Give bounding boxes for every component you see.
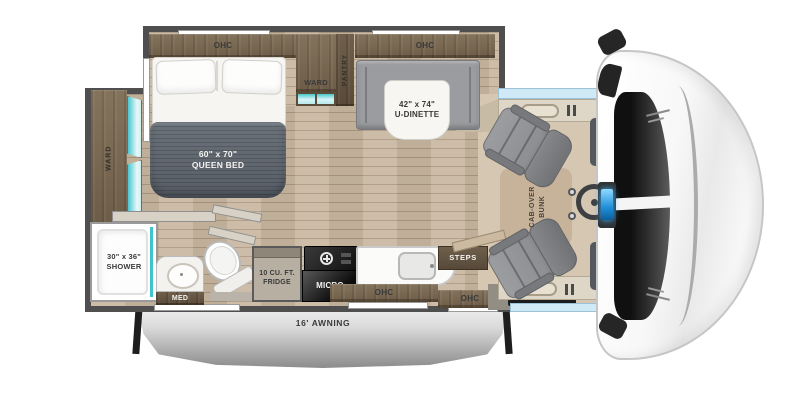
awning-end-right: [502, 306, 512, 354]
pillow: [155, 59, 216, 95]
bath-divider-wall: [112, 211, 216, 222]
dinette-size-label: 42" x 74": [399, 100, 435, 110]
fridge-name-label: FRIDGE: [263, 278, 291, 287]
cab-door-top-window: [498, 88, 602, 99]
bedroom-ward: WARD: [296, 34, 336, 92]
dash-screen: [601, 189, 613, 220]
cab-door-bottom-window: [510, 303, 602, 312]
awning: 16' AWNING: [132, 306, 514, 368]
pantry: PANTRY: [336, 34, 354, 106]
bed-type-label: QUEEN BED: [192, 160, 244, 171]
dash-knob: [568, 212, 576, 220]
bed-size-label: 60" x 70": [199, 149, 237, 160]
bedroom-window: [143, 58, 150, 142]
lav-sink: [167, 263, 199, 289]
bath-window: [154, 304, 240, 311]
awning-label: 16' AWNING: [132, 318, 514, 329]
bed-blanket: 60" x 70" QUEEN BED: [150, 122, 286, 198]
awning-end-left: [132, 306, 142, 354]
queen-bed: 60" x 70" QUEEN BED: [150, 55, 286, 197]
toilet-base: [210, 292, 254, 301]
dinette-name-label: U-DINETTE: [395, 110, 439, 120]
cooktop: [304, 246, 358, 272]
dinette-table: 42" x 74" U-DINETTE: [384, 80, 450, 140]
left-ward: WARD: [91, 90, 127, 226]
fridge-size-label: 10 CU. FT.: [259, 269, 294, 278]
dash-knob: [568, 188, 576, 196]
bedroom-ward-cabinets: [296, 92, 336, 106]
shower: 30" x 36" SHOWER: [90, 222, 158, 302]
dinette-ohc: OHC: [355, 34, 495, 58]
shower-size-label: 30" x 36": [107, 252, 141, 262]
ward-mirror-door: [127, 96, 142, 158]
cabover-bunk-label: CAB-OVER BUNK: [506, 178, 570, 236]
fridge: 10 CU. FT. FRIDGE: [252, 246, 302, 302]
kitchen-window: [348, 302, 428, 309]
shower-name-label: SHOWER: [107, 262, 142, 272]
pillow: [221, 59, 282, 95]
med-cabinet: MED: [156, 292, 204, 305]
rv-floorplan: 16' AWNING OHC WARD PANTRY: [0, 0, 800, 408]
kitchen-ohc-1: OHC: [330, 284, 438, 302]
faucet: [430, 264, 434, 268]
